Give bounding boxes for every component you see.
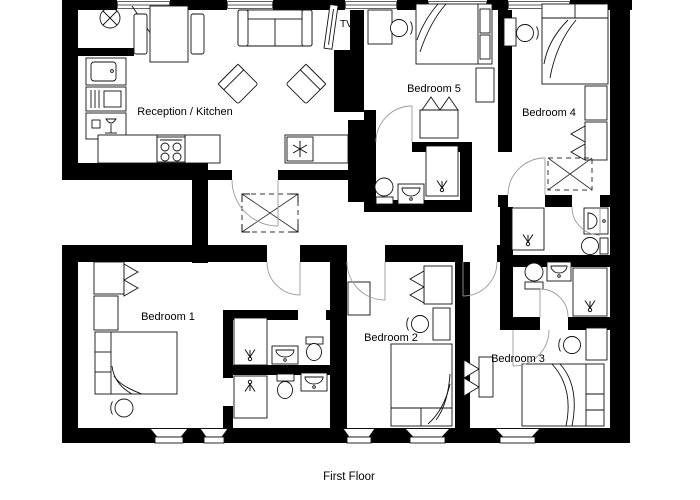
- sofa: [238, 10, 312, 46]
- tv: [324, 5, 338, 50]
- window: [227, 0, 273, 10]
- wardrobe: [410, 266, 452, 304]
- wardrobe: [94, 262, 138, 296]
- shower: [234, 376, 267, 418]
- desk-chair: [407, 316, 429, 333]
- armchair: [286, 64, 326, 104]
- label-tv: TV: [340, 19, 353, 30]
- desk: [368, 10, 392, 44]
- label-bedroom-3: Bedroom 3: [491, 353, 545, 365]
- floor-plan: Reception / Kitchen Bedroom 5 Bedroom 4 …: [0, 0, 700, 500]
- label-bedroom-5: Bedroom 5: [407, 83, 461, 95]
- toilet: [525, 263, 543, 289]
- skylight-box: [242, 194, 298, 232]
- bed: [416, 4, 492, 64]
- label-floor: First Floor: [323, 471, 375, 483]
- corridor: [242, 194, 298, 232]
- bed: [542, 4, 608, 84]
- bed: [522, 364, 604, 426]
- room-bedroom-1: [94, 262, 177, 417]
- window: [405, 429, 450, 444]
- shower: [573, 268, 607, 316]
- window: [150, 429, 188, 444]
- stove: [157, 137, 185, 162]
- room-bedroom-4: [504, 4, 608, 190]
- desk-chair: [111, 399, 133, 417]
- door-arc: [508, 158, 545, 195]
- skylight-box: [548, 158, 592, 190]
- door-arc: [267, 262, 300, 295]
- toilet: [306, 337, 323, 361]
- kitchen-sink: [86, 58, 126, 85]
- shower: [234, 318, 267, 365]
- cabinet: [348, 282, 370, 315]
- label-bedroom-1: Bedroom 1: [141, 311, 195, 323]
- desk: [433, 308, 450, 340]
- wardrobe: [571, 86, 607, 160]
- window: [345, 0, 397, 10]
- armchair: [218, 64, 258, 104]
- desk-chair: [517, 25, 539, 42]
- room-bedroom-3: [464, 328, 607, 426]
- shower: [426, 146, 458, 196]
- cabinet: [94, 296, 118, 330]
- desk: [586, 328, 607, 360]
- shower-room-lower: [234, 373, 327, 418]
- fridge-freezer: [285, 135, 348, 163]
- window: [343, 429, 375, 444]
- desk: [504, 18, 516, 46]
- door-arc: [376, 106, 412, 142]
- side-table: [476, 68, 494, 102]
- sink: [398, 184, 424, 204]
- bathroom-b: [525, 262, 607, 316]
- desk-chair: [559, 337, 581, 354]
- sink: [272, 346, 298, 364]
- sink: [584, 208, 608, 234]
- desk-chair: [391, 20, 413, 37]
- wardrobe: [420, 97, 458, 138]
- bed: [95, 332, 177, 394]
- dining-table: [134, 6, 204, 62]
- door-arc: [540, 289, 568, 317]
- bed: [391, 344, 452, 426]
- room-bedroom-2: [348, 266, 452, 426]
- room-bedroom-5: [368, 4, 494, 138]
- toilet: [375, 178, 393, 204]
- dishwasher: [86, 87, 126, 111]
- bathroom-a: [512, 208, 608, 255]
- shower-room-upper: [234, 318, 323, 365]
- window: [495, 429, 540, 444]
- room-reception-kitchen: [86, 5, 348, 163]
- label-reception-kitchen: Reception / Kitchen: [137, 106, 232, 118]
- sink: [301, 373, 327, 391]
- ensuite-bedroom-5: [375, 146, 458, 204]
- label-bedroom-4: Bedroom 4: [522, 107, 576, 119]
- label-bedroom-2: Bedroom 2: [364, 332, 418, 344]
- toilet: [582, 238, 609, 255]
- toilet: [277, 374, 294, 399]
- floor-plan-drawing: Reception / Kitchen Bedroom 5 Bedroom 4 …: [0, 0, 700, 500]
- sink: [547, 262, 571, 281]
- shower: [512, 208, 544, 250]
